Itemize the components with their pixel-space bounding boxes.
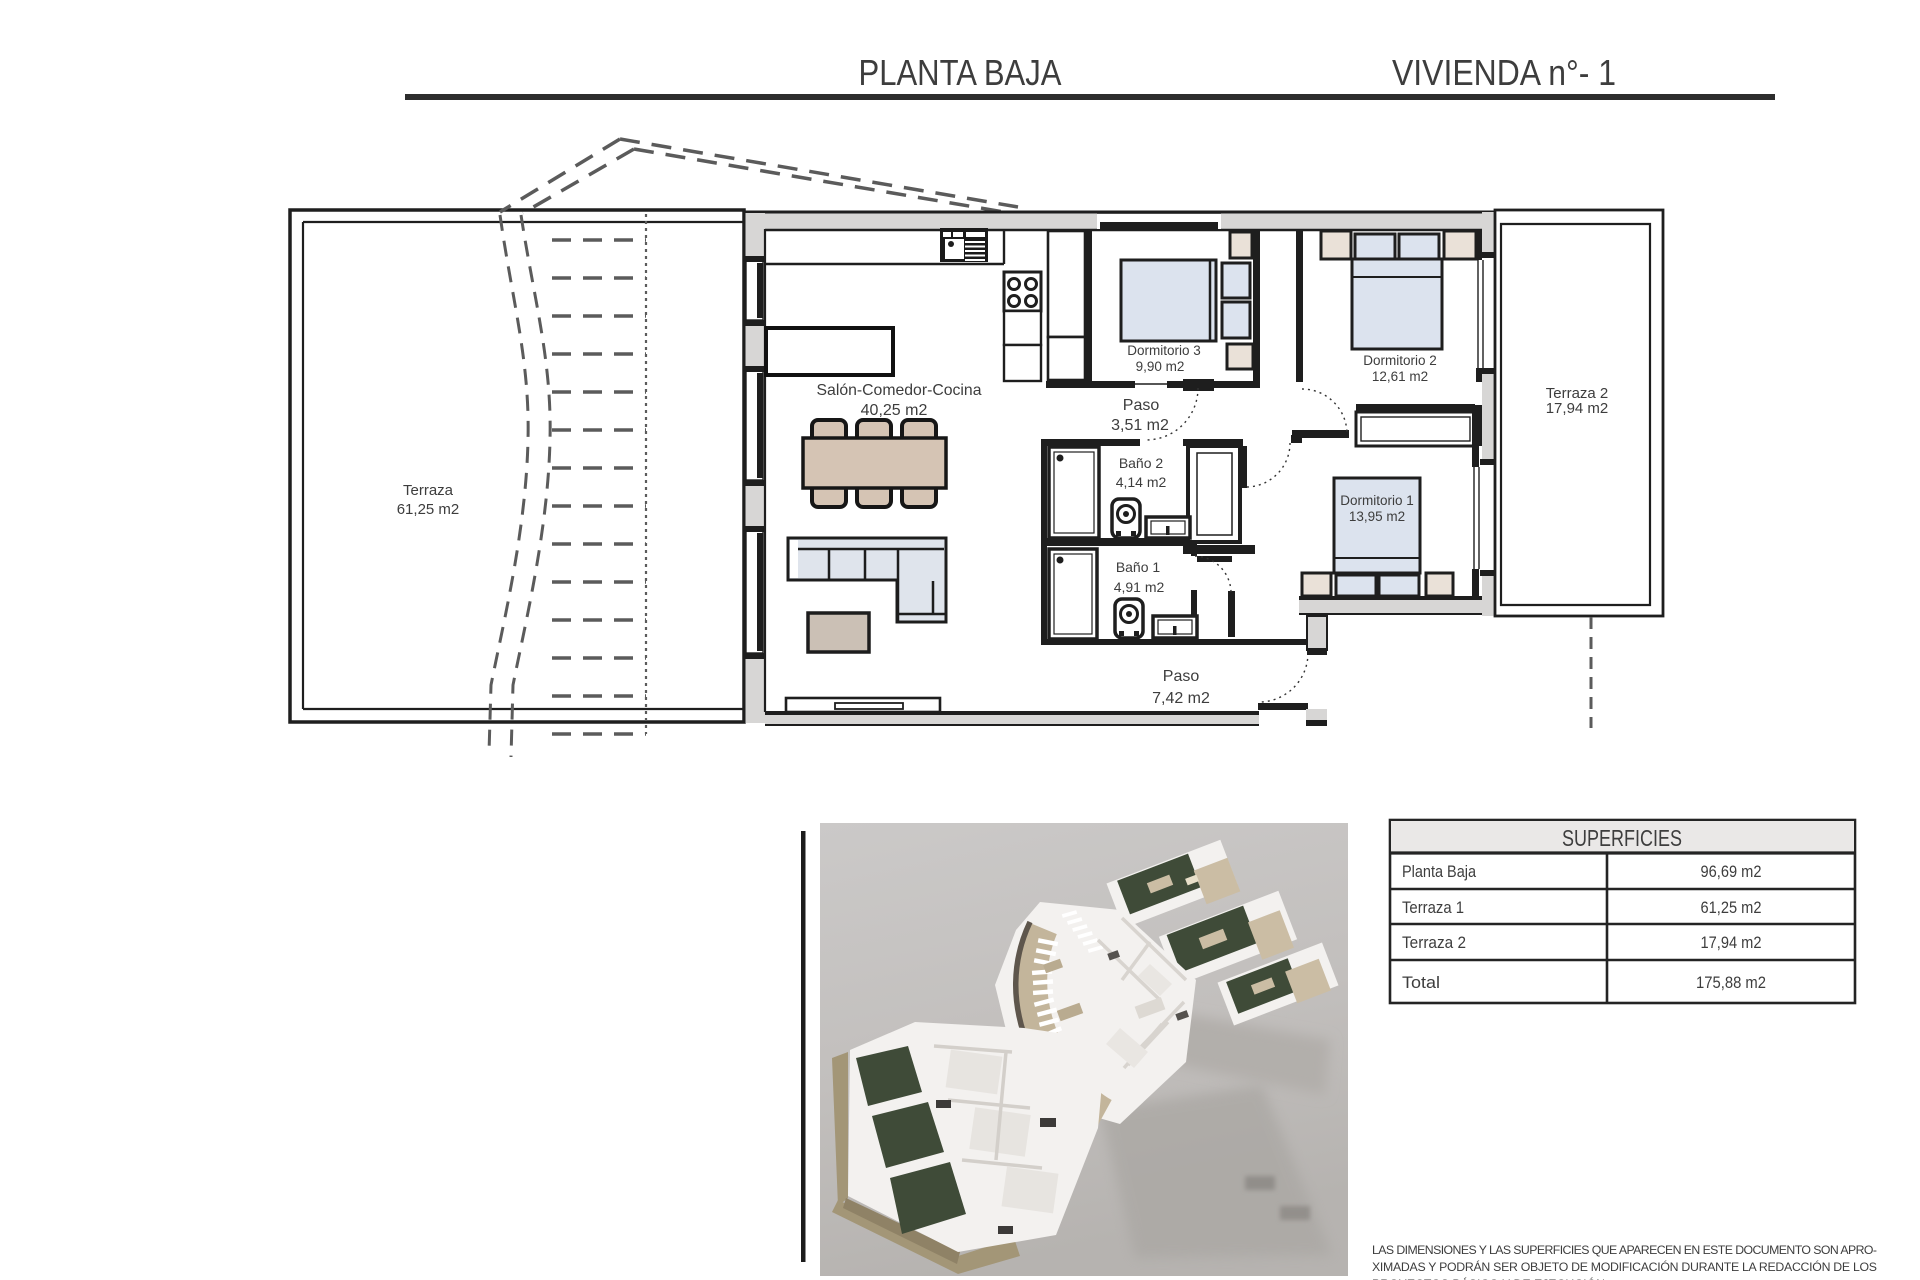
- svg-text:VIVIENDA n°- 1: VIVIENDA n°- 1: [1392, 52, 1616, 93]
- svg-text:Paso: Paso: [1163, 668, 1200, 685]
- svg-text:96,69 m2: 96,69 m2: [1701, 862, 1762, 881]
- svg-text:Baño 2: Baño 2: [1119, 455, 1164, 471]
- svg-text:Terraza 1: Terraza 1: [1402, 898, 1464, 917]
- svg-text:Salón-Comedor-Cocina: Salón-Comedor-Cocina: [817, 382, 982, 399]
- svg-text:17,94 m2: 17,94 m2: [1546, 400, 1609, 417]
- svg-text:61,25 m2: 61,25 m2: [397, 501, 460, 518]
- svg-text:PROYECTOS BÁSICO Y DE EJECUCIÓ: PROYECTOS BÁSICO Y DE EJECUCIÓN.: [1372, 1276, 1608, 1280]
- svg-text:Terraza 2: Terraza 2: [1402, 933, 1466, 952]
- svg-text:LAS DIMENSIONES Y LAS SUPERFIC: LAS DIMENSIONES Y LAS SUPERFICIES QUE AP…: [1372, 1243, 1877, 1257]
- svg-text:7,42 m2: 7,42 m2: [1152, 690, 1210, 707]
- svg-text:13,95 m2: 13,95 m2: [1349, 509, 1405, 524]
- svg-text:Paso: Paso: [1123, 397, 1160, 414]
- svg-text:Terraza: Terraza: [403, 482, 454, 499]
- svg-text:3,51 m2: 3,51 m2: [1111, 417, 1169, 434]
- svg-text:PLANTA BAJA: PLANTA BAJA: [859, 52, 1062, 93]
- svg-text:12,61 m2: 12,61 m2: [1372, 369, 1428, 384]
- svg-text:Planta Baja: Planta Baja: [1402, 862, 1476, 881]
- svg-text:Dormitorio 2: Dormitorio 2: [1363, 353, 1437, 368]
- svg-text:Dormitorio 1: Dormitorio 1: [1340, 493, 1414, 508]
- svg-text:Total: Total: [1402, 973, 1440, 992]
- svg-text:SUPERFICIES: SUPERFICIES: [1562, 825, 1682, 851]
- svg-text:4,14 m2: 4,14 m2: [1116, 474, 1167, 490]
- svg-text:Baño 1: Baño 1: [1116, 559, 1161, 575]
- svg-text:9,90 m2: 9,90 m2: [1136, 359, 1185, 374]
- svg-text:XIMADAS Y PODRÁN SER OBJETO DE: XIMADAS Y PODRÁN SER OBJETO DE MODIFICAC…: [1372, 1259, 1877, 1274]
- svg-text:17,94 m2: 17,94 m2: [1701, 933, 1762, 952]
- svg-text:61,25 m2: 61,25 m2: [1701, 898, 1762, 917]
- svg-text:Dormitorio 3: Dormitorio 3: [1127, 343, 1201, 358]
- svg-text:4,91 m2: 4,91 m2: [1114, 579, 1165, 595]
- svg-text:175,88 m2: 175,88 m2: [1696, 973, 1766, 992]
- svg-text:40,25 m2: 40,25 m2: [861, 402, 928, 419]
